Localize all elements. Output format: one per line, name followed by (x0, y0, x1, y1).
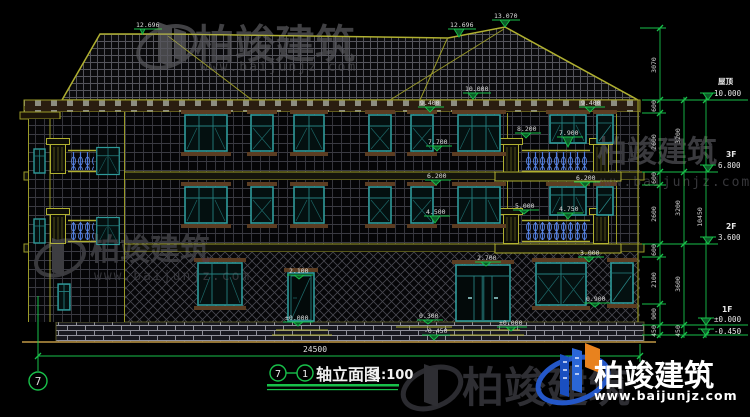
total-width-dim: 24500 (303, 345, 327, 354)
balcony-balustrade-2f (522, 221, 590, 242)
svg-text:www.baijunjz.com: www.baijunjz.com (200, 60, 357, 75)
svg-text:2.700: 2.700 (477, 254, 497, 262)
level-name: 3F (726, 150, 736, 159)
watermark-top: 柏竣建筑 www.baijunjz.com (132, 18, 357, 76)
dim-value: 2100 (650, 272, 658, 288)
svg-text:9.400: 9.400 (581, 99, 601, 107)
svg-text:±0.000: ±0.000 (499, 319, 523, 327)
level-name: 2F (726, 222, 736, 231)
elevation-drawing: 3070 600 2600 600 2600 600 2100 900 450 … (0, 0, 750, 417)
svg-text:柏竣建筑: 柏竣建筑 (90, 233, 210, 268)
window-1f (611, 263, 633, 303)
svg-text:www.baijunjz.com: www.baijunjz.com (94, 269, 251, 284)
svg-text:4.500: 4.500 (426, 208, 446, 216)
double-door (456, 265, 510, 321)
svg-text:7.900: 7.900 (559, 129, 579, 137)
svg-text:2.100: 2.100 (289, 267, 309, 275)
dim-value: 2600 (650, 206, 658, 222)
window-2f (411, 187, 433, 223)
svg-text:12.696: 12.696 (450, 21, 474, 29)
svg-text:6.200: 6.200 (427, 172, 447, 180)
cad-canvas: 3070 600 2600 600 2600 600 2100 900 450 … (0, 0, 750, 417)
dim-value: 3200 (674, 200, 682, 216)
dim-value: 450 (650, 325, 658, 337)
svg-text:12.696: 12.696 (136, 21, 160, 29)
bay-side-window-3f (34, 149, 45, 173)
svg-text:0.300: 0.300 (419, 312, 439, 320)
svg-text:www.baijunjz.com: www.baijunjz.com (594, 175, 750, 190)
window-2f (369, 187, 391, 223)
window-2f (185, 187, 227, 223)
dim-value: 3600 (674, 276, 682, 292)
bay-side-window-2f (34, 219, 45, 243)
dim-value: 450 (674, 325, 682, 337)
logo-bar-blue (560, 354, 569, 397)
bay-window-1f (58, 284, 70, 310)
svg-text:7: 7 (275, 369, 281, 380)
window-2f (458, 187, 500, 223)
level-name: 1F (722, 305, 732, 314)
level-value: 6.800 (718, 161, 741, 170)
window-3f (458, 115, 500, 151)
level-value: 3.600 (718, 233, 741, 242)
level-name: 屋顶 (718, 77, 733, 86)
dim-total-height: 10450 (696, 207, 704, 227)
svg-text:1: 1 (302, 369, 308, 380)
svg-text:8.200: 8.200 (517, 125, 537, 133)
balcony-slab-2f (495, 244, 621, 253)
window-3f (185, 115, 227, 151)
left-bay (28, 112, 125, 322)
window-3f (369, 115, 391, 151)
svg-text:4.750: 4.750 (559, 205, 579, 213)
window-2f (251, 187, 273, 223)
svg-text:7: 7 (35, 375, 42, 388)
svg-text:柏竣建筑: 柏竣建筑 (597, 135, 717, 170)
svg-text:10.000: 10.000 (465, 85, 489, 93)
dim-value: 3070 (650, 57, 658, 73)
drawing-title: 轴立面图 (316, 365, 380, 384)
plinth-brick (56, 322, 644, 342)
window-3f (251, 115, 273, 151)
window-1f (536, 263, 586, 305)
level-value: 10.000 (714, 89, 742, 98)
svg-text:6.200: 6.200 (576, 174, 596, 182)
dim-value: 600 (650, 100, 658, 112)
logo-bar-blue (572, 348, 582, 393)
svg-text:-0.450: -0.450 (424, 327, 448, 335)
level-value: ±0.000 (714, 315, 742, 324)
svg-text:7.700: 7.700 (428, 138, 448, 146)
window-2f (294, 187, 324, 223)
bay-window-3f (97, 148, 120, 175)
svg-text:0.900: 0.900 (586, 295, 606, 303)
watermark-logo-icon (52, 238, 64, 276)
level-value: -0.450 (714, 327, 742, 336)
balcony-balustrade-3f (522, 151, 590, 172)
bay-balustrade-3f (68, 151, 96, 172)
dim-value: 600 (650, 244, 658, 256)
watermark-logo-icon (424, 364, 438, 407)
window-3f (294, 115, 324, 151)
dim-value: 900 (650, 308, 658, 320)
svg-text:5.000: 5.000 (515, 202, 535, 210)
svg-text:9.400: 9.400 (420, 99, 440, 107)
logo-url-text: www.baijunjz.com (594, 388, 738, 403)
svg-text:±0.000: ±0.000 (285, 314, 309, 322)
svg-text:13.070: 13.070 (494, 12, 518, 20)
svg-text:3.000: 3.000 (580, 249, 600, 257)
window-2f (597, 187, 613, 215)
